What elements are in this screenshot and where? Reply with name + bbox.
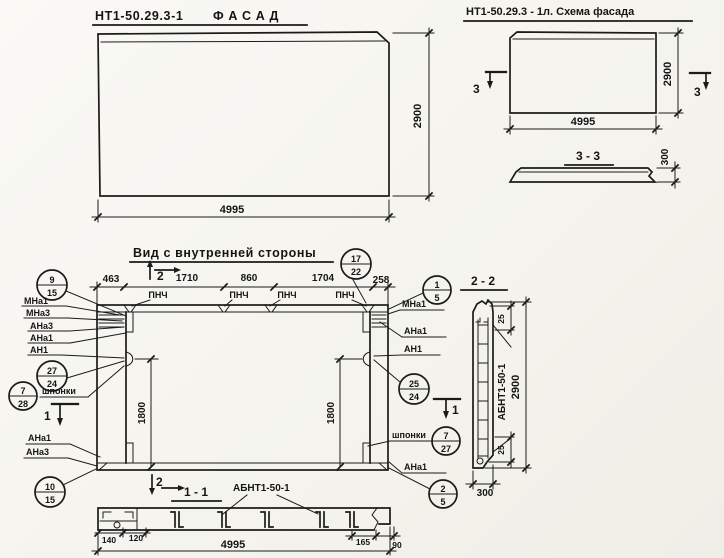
pnch-label-4: ПНЧ	[335, 290, 354, 300]
label-ana3-left-bottom: АНа3	[26, 447, 49, 457]
label-mna1-right: МНа1	[402, 299, 426, 309]
schema-cut-label-right: 3	[694, 85, 701, 99]
section-3-3-title: 3 - 3	[576, 149, 600, 163]
top-notches	[124, 305, 374, 312]
facade-dim-width: 4995	[92, 200, 395, 222]
section-2-2-dim-width: 300	[466, 465, 500, 499]
callout-1-5-top: 1	[434, 280, 439, 290]
schema-view: НТ1-50.29.3 - 1л. Схема фасада 3 3 4995	[464, 6, 710, 188]
schema-cut-label-left: 3	[473, 82, 480, 96]
facade-title-code: НТ1-50.29.3-1	[95, 9, 183, 23]
pnch-label-1: ПНЧ	[148, 290, 167, 300]
callout-7-28-bottom: 28	[18, 399, 28, 409]
cut-2-bottom-label: 2	[156, 475, 163, 489]
section-3-3: 3 - 3 300	[510, 148, 680, 188]
schema-dim-height: 2900	[659, 28, 683, 118]
dim-120: 120	[129, 533, 143, 543]
schema-dim-width-label: 4995	[571, 116, 595, 128]
section-2-2-mesh-label: АБНТ1-50-1	[497, 363, 508, 420]
dim-860: 860	[241, 273, 258, 284]
callout-1-5-bottom: 5	[434, 293, 439, 303]
callout-17-22-top: 17	[351, 254, 361, 264]
inner-panel-outline	[97, 305, 388, 470]
keys-label-left: шпонки	[42, 386, 76, 396]
section-2-2-title: 2 - 2	[471, 274, 495, 288]
schema-dim-height-label: 2900	[662, 62, 674, 86]
callout-7-27-top: 7	[443, 431, 448, 441]
section-2-2-mesh-callout: АБНТ1-50-1	[493, 325, 511, 452]
facade-dim-height-label: 2900	[412, 104, 424, 128]
dim-90: 90	[392, 540, 402, 550]
drawing-sheet: НТ1-50.29.3-1 Ф А С А Д 4995 2900 НТ1-50…	[0, 0, 724, 558]
label-an1-left: АН1	[30, 345, 48, 355]
facade-outline	[98, 32, 389, 196]
dim-2900-section: 2900	[510, 375, 522, 399]
label-ana1-left: АНа1	[30, 333, 53, 343]
cut-mark-1-left: 1	[44, 404, 78, 426]
label-ana3-left: АНа3	[30, 321, 53, 331]
callout-2-5-top: 2	[440, 484, 445, 494]
label-ana1-right-bottom: АНа1	[404, 462, 427, 472]
dim-140: 140	[102, 535, 116, 545]
facade-dim-width-label: 4995	[220, 204, 244, 216]
schema-dim-width: 4995	[504, 116, 662, 134]
inner-title: Вид с внутренней стороны	[133, 246, 316, 260]
schema-cut-mark-left: 3	[473, 72, 506, 96]
section-1-1-mesh-label: АБНТ1-50-1	[233, 483, 290, 494]
schema-title: НТ1-50.29.3 - 1л. Схема фасада	[466, 6, 635, 18]
dim-25-bottom: 25	[496, 445, 506, 455]
dim-165: 165	[356, 537, 370, 547]
callout-9-15-bottom: 15	[47, 288, 57, 298]
dim-300: 300	[477, 488, 494, 499]
facade-title-name: Ф А С А Д	[213, 9, 279, 23]
cut-1-right-label: 1	[452, 403, 459, 417]
label-ana1-left-bottom: АНа1	[28, 433, 51, 443]
section-2-2-ladder-rebar	[476, 318, 488, 458]
pnch-label-3: ПНЧ	[277, 290, 296, 300]
cut-mark-1-right: 1	[434, 399, 460, 419]
callout-25-24-top: 25	[409, 379, 419, 389]
callout-9-15-top: 9	[49, 275, 54, 285]
label-ana1-right: АНа1	[404, 326, 427, 336]
label-mna1-left: МНа1	[24, 296, 48, 306]
schema-outline	[510, 32, 656, 113]
cut-mark-2-bottom: 2	[149, 475, 185, 495]
dim-1800-right: 1800	[326, 356, 362, 470]
cut-1-left-label: 1	[44, 409, 51, 423]
callout-10-15-bottom: 15	[45, 495, 55, 505]
callout-10-15-top: 10	[45, 482, 55, 492]
dim-463: 463	[103, 274, 120, 285]
inner-view: Вид с внутренней стороны 2 463 1710 860 …	[9, 246, 460, 508]
dim-1800-left-label: 1800	[137, 401, 148, 424]
facade-dim-height: 2900	[393, 28, 434, 201]
section-1-1-stirrups	[171, 512, 358, 527]
dim-1800-left: 1800	[135, 356, 158, 470]
section-1-1: 1 - 1 АБНТ1-50-1	[92, 483, 402, 555]
callout-7-28-top: 7	[20, 386, 25, 396]
section-2-2: 2 - 2 АБНТ1-50-1 25	[461, 274, 531, 499]
keys-label-right: шпонки	[392, 430, 426, 440]
panel-drawing: НТ1-50.29.3-1 Ф А С А Д 4995 2900 НТ1-50…	[0, 0, 724, 558]
section-1-1-title: 1 - 1	[184, 485, 208, 499]
callout-2-5-bottom: 5	[440, 497, 445, 507]
dim-25-top: 25	[496, 314, 506, 324]
section-2-2-dim-height: 2900	[485, 297, 531, 473]
section-3-3-strip	[510, 168, 655, 182]
section-3-3-dim: 300	[657, 148, 680, 188]
dim-1704: 1704	[312, 273, 335, 284]
callout-17-22-bottom: 22	[351, 267, 361, 277]
label-mna3-left: МНа3	[26, 308, 50, 318]
schema-cut-mark-right: 3	[690, 73, 710, 99]
cut-2-top-label: 2	[157, 269, 164, 283]
dim-1710: 1710	[176, 273, 199, 284]
pnch-labels: ПНЧ ПНЧ ПНЧ ПНЧ	[132, 290, 366, 306]
dim-1800-right-label: 1800	[326, 401, 337, 424]
callout-7-27-bottom: 27	[441, 444, 451, 454]
right-end-rib	[363, 312, 387, 470]
section-3-3-dim-label: 300	[660, 148, 671, 165]
callout-25-24-bottom: 24	[409, 392, 419, 402]
callout-27-24-top: 27	[47, 366, 57, 376]
dim-total-4995: 4995	[221, 539, 245, 551]
dim-258: 258	[373, 275, 390, 286]
right-labels: 17 22 1 5 МНа1 АНа1 АН1 25 24	[341, 249, 460, 508]
facade-view: НТ1-50.29.3-1 Ф А С А Д 4995 2900	[92, 9, 434, 222]
left-end-rib	[99, 312, 133, 470]
pnch-label-2: ПНЧ	[229, 290, 248, 300]
label-an1-right: АН1	[404, 344, 422, 354]
